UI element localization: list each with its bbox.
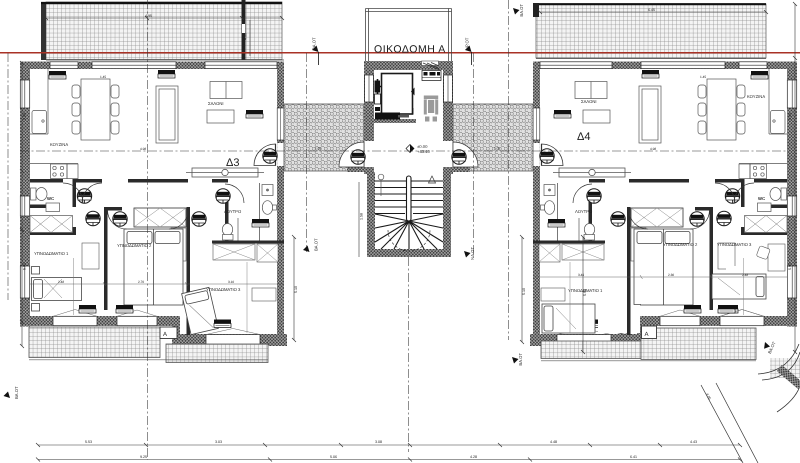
svg-text:3.08: 3.08 [375, 440, 382, 444]
svg-text:4.60: 4.60 [244, 33, 248, 40]
svg-text:ΥΠΝΟΔΩΜΑΤΙΟ 2: ΥΠΝΟΔΩΜΑΤΙΟ 2 [663, 242, 698, 247]
svg-text:A: A [163, 331, 167, 338]
svg-text:ΚΟΥΖΙΝΑ: ΚΟΥΖΙΝΑ [50, 142, 68, 147]
svg-text:3.10: 3.10 [228, 280, 234, 284]
svg-text:4.95: 4.95 [145, 14, 152, 18]
svg-text:WC: WC [47, 196, 54, 201]
svg-text:ΥΠΝΟΔΩΜΑΤΙΟ 2: ΥΠΝΟΔΩΜΑΤΙΟ 2 [117, 243, 152, 248]
svg-text:ΣΑΛΟΝΙ: ΣΑΛΟΝΙ [208, 101, 224, 106]
svg-text:ΒΑ.ΟΤ: ΒΑ.ΟΤ [14, 386, 19, 399]
svg-text:4.28: 4.28 [470, 455, 477, 459]
svg-text:1.45: 1.45 [700, 75, 706, 79]
svg-text:5.90: 5.90 [23, 263, 27, 270]
svg-text:9.25: 9.25 [140, 455, 147, 459]
svg-text:2.70: 2.70 [138, 280, 144, 284]
svg-text:5.98: 5.98 [23, 113, 27, 120]
svg-text:ΚΟΥΖΙΝΑ: ΚΟΥΖΙΝΑ [747, 94, 765, 99]
svg-text:4.48: 4.48 [550, 440, 557, 444]
svg-text:3.46: 3.46 [578, 273, 584, 277]
svg-text:5.98: 5.98 [788, 113, 792, 120]
svg-text:5.95: 5.95 [583, 289, 587, 296]
svg-text:2.48: 2.48 [742, 273, 748, 277]
svg-text:1.45: 1.45 [100, 75, 106, 79]
svg-text:4.43: 4.43 [690, 440, 697, 444]
svg-text:1.58: 1.58 [360, 213, 364, 220]
svg-text:ΒΑ.ΟΤ: ΒΑ.ΟΤ [518, 353, 523, 366]
svg-text:2.30: 2.30 [668, 273, 674, 277]
svg-text:4.98: 4.98 [140, 147, 146, 151]
svg-text:ΒΑ.ΟΤ: ΒΑ.ΟΤ [312, 37, 317, 50]
svg-text:4.98: 4.98 [650, 147, 656, 151]
svg-text:1.05: 1.05 [315, 147, 321, 151]
svg-text:ΛΟΥΤΡΟ: ΛΟΥΤΡΟ [575, 209, 593, 214]
svg-text:1.05: 1.05 [494, 147, 500, 151]
svg-text:Δ3: Δ3 [226, 157, 239, 169]
svg-text:WC: WC [758, 196, 765, 201]
svg-text:ΝΔ.ΟΤ: ΝΔ.ΟΤ [470, 247, 475, 260]
svg-text:Δ4: Δ4 [577, 131, 590, 143]
svg-text:ΥΠΝΟΔΩΜΑΤΙΟ 3: ΥΠΝΟΔΩΜΑΤΙΟ 3 [206, 287, 241, 292]
svg-text:ΛΟΥΤΡΟ: ΛΟΥΤΡΟ [224, 209, 242, 214]
svg-text:5.06: 5.06 [330, 455, 337, 459]
svg-text:2.48: 2.48 [58, 280, 64, 284]
svg-text:+43.40: +43.40 [417, 149, 431, 154]
svg-text:6.41: 6.41 [630, 455, 637, 459]
svg-text:ΥΠΝΟΔΩΜΑΤΙΟ 3: ΥΠΝΟΔΩΜΑΤΙΟ 3 [717, 242, 752, 247]
svg-text:ΣΑΛΟΝΙ: ΣΑΛΟΝΙ [581, 99, 597, 104]
svg-text:ΥΠΝΟΔΩΜΑΤΙΟ 1: ΥΠΝΟΔΩΜΑΤΙΟ 1 [34, 251, 69, 256]
svg-text:ΒΑ.ΟΤ: ΒΑ.ΟΤ [314, 238, 319, 251]
svg-text:5.10: 5.10 [294, 286, 298, 293]
svg-text:5.90: 5.90 [788, 263, 792, 270]
svg-text:3.03: 3.03 [215, 440, 222, 444]
svg-text:5.53: 5.53 [85, 440, 92, 444]
svg-text:A: A [645, 331, 649, 338]
svg-text:6.45: 6.45 [648, 8, 655, 12]
svg-text:ΟΙΚΟΔΟΜΗ Α: ΟΙΚΟΔΟΜΗ Α [374, 44, 446, 56]
svg-text:ΝΡ.ΟΤ: ΝΡ.ΟΤ [465, 37, 470, 50]
svg-text:5.10: 5.10 [522, 288, 526, 295]
svg-text:ΒΑ.ΟΤ: ΒΑ.ΟΤ [519, 4, 524, 17]
